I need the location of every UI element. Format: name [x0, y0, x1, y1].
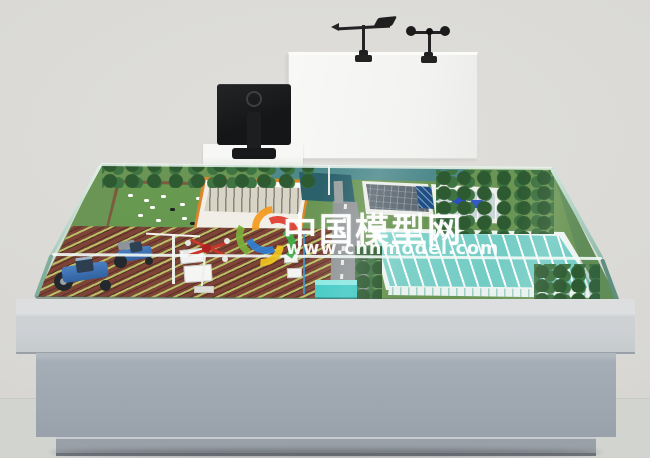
monitor-stand — [247, 112, 261, 152]
watermark-site-url: www.chnmodel.com — [286, 239, 499, 259]
anemometer-cup-right — [440, 26, 450, 36]
anemometer-hub — [426, 28, 433, 35]
pedestal — [36, 353, 616, 437]
wind-vane-base — [355, 55, 372, 62]
anemometer-base — [421, 56, 437, 63]
monitor-stand-base — [232, 148, 276, 159]
monitor-logo — [246, 91, 262, 107]
display-board — [288, 52, 478, 159]
floor-shadow — [50, 449, 602, 456]
anemometer-cup-left — [406, 26, 416, 36]
table-top — [16, 299, 635, 354]
photo-scale-model-display: 中国模型网 www.chnmodel.com — [0, 0, 650, 458]
